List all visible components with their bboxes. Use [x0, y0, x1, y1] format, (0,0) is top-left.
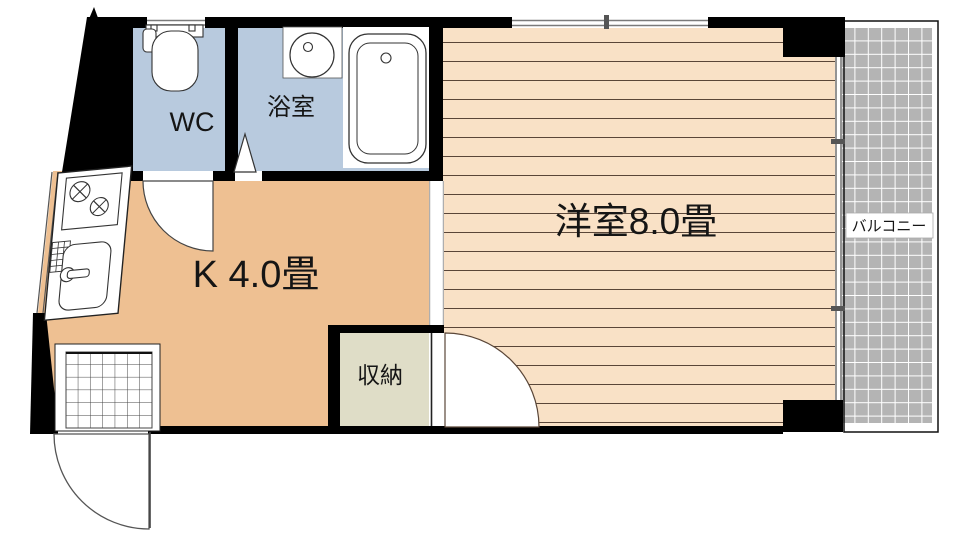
western-room-label: 洋室8.0畳 [555, 201, 717, 242]
wc-label: WC [170, 107, 215, 137]
wall-storage-left [328, 325, 340, 426]
kitchen-counter [44, 166, 131, 320]
stove [62, 173, 123, 230]
storage-label: 収納 [357, 362, 403, 388]
wall-step-top-right [783, 27, 845, 57]
floorplan-canvas: WC 浴室 K 4.0畳 洋室8.0畳 収納 バルコニー [0, 0, 960, 556]
floorplan-drawing: WC 浴室 K 4.0畳 洋室8.0畳 収納 バルコニー [0, 0, 960, 556]
sink-faucet-handle [67, 269, 90, 279]
wall-under-wc [131, 171, 143, 181]
wall-step-bottom-right [783, 400, 843, 432]
bathtub-faucet [381, 53, 391, 63]
top-window-gap [512, 17, 708, 28]
genkan-tile-grid [66, 352, 152, 428]
bathroom-label: 浴室 [267, 94, 315, 121]
wall-wc-bathroom [225, 27, 238, 171]
balcony-label: バルコニー [852, 218, 927, 235]
wall-top-right [708, 17, 845, 28]
toilet-tank-bolt [189, 25, 195, 31]
wall-under-bathroom [262, 171, 429, 181]
washbasin-bowl [290, 33, 334, 77]
washbasin-faucet [304, 43, 313, 52]
window-mullion [831, 306, 845, 311]
wall-top-center [205, 17, 512, 28]
wc-door-opening [143, 171, 213, 181]
window-mullion [831, 139, 845, 144]
kitchen-label: K 4.0畳 [193, 254, 320, 296]
wall-storage-top [328, 325, 444, 333]
window-mullion [604, 15, 609, 29]
toilet-bowl [152, 31, 198, 91]
entrance-genkan [55, 344, 160, 431]
storage-door-threshold [431, 333, 445, 426]
washbasin [283, 27, 342, 78]
bathtub [343, 27, 429, 168]
kitchen-western-opening [429, 181, 444, 327]
western-room-top-window [512, 15, 708, 29]
wall-under-wc-right [213, 171, 235, 181]
wall-bathroom-western [429, 17, 443, 181]
